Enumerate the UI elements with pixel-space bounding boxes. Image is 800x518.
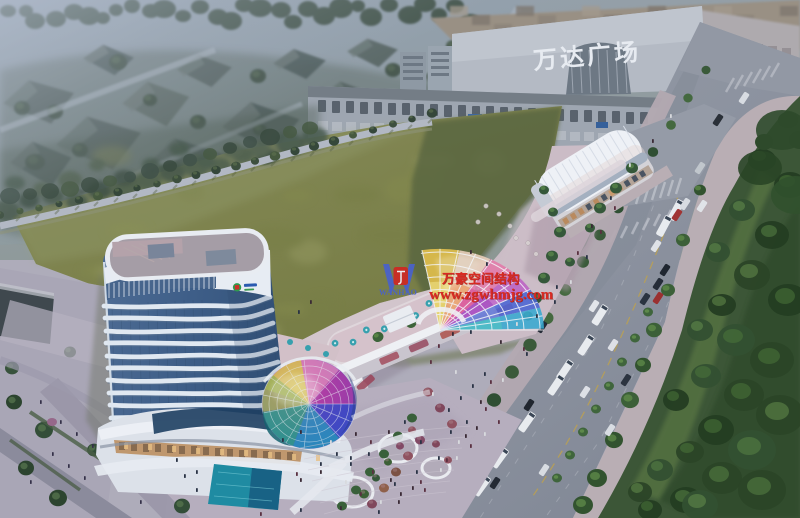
- svg-text:万豪空间结构: 万豪空间结构: [441, 271, 520, 286]
- svg-text:WANHAO: WANHAO: [379, 288, 417, 297]
- svg-text:www.zgwhmjg.com: www.zgwhmjg.com: [429, 287, 554, 303]
